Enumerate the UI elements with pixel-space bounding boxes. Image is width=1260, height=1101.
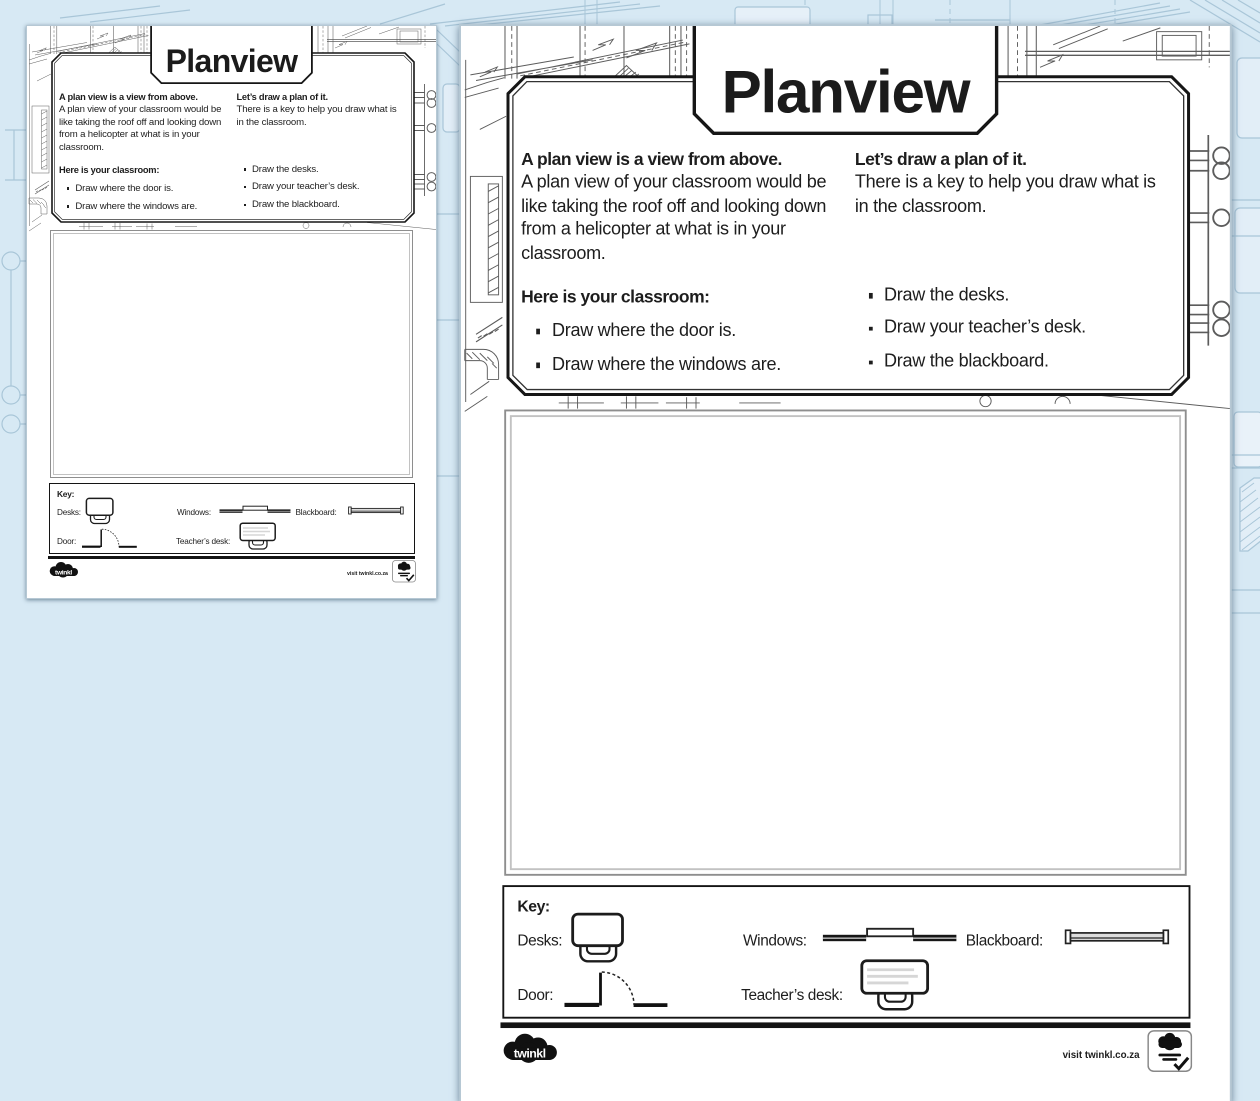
svg-text:twinkl: twinkl <box>55 569 72 576</box>
svg-text:twinkl: twinkl <box>513 1045 545 1059</box>
